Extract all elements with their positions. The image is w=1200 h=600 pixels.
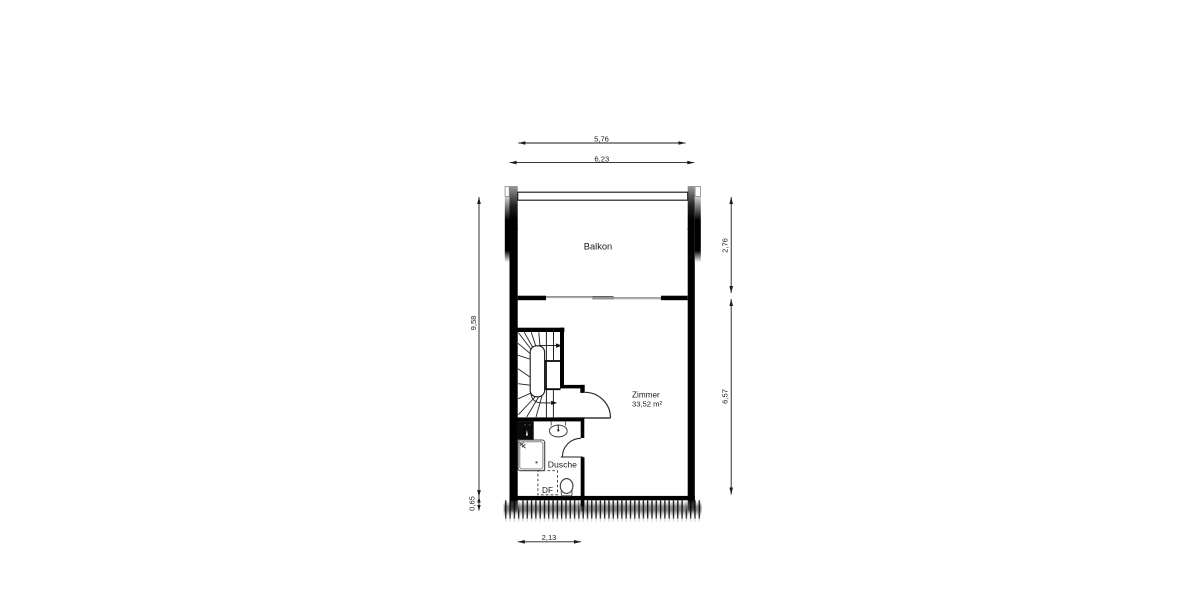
svg-text:5,76: 5,76 <box>594 135 609 144</box>
svg-text:Zimmer: Zimmer <box>632 391 660 400</box>
svg-text:33,52 m²: 33,52 m² <box>632 400 662 409</box>
svg-text:6,23: 6,23 <box>594 154 609 163</box>
svg-text:0,65: 0,65 <box>467 496 476 511</box>
svg-text:Dusche: Dusche <box>548 459 577 469</box>
svg-text:2,76: 2,76 <box>721 238 730 253</box>
svg-text:6,57: 6,57 <box>721 389 730 404</box>
svg-text:9,58: 9,58 <box>469 316 478 331</box>
svg-text:DF: DF <box>542 486 553 495</box>
svg-text:Balkon: Balkon <box>584 242 612 252</box>
svg-text:2,13: 2,13 <box>542 533 557 542</box>
